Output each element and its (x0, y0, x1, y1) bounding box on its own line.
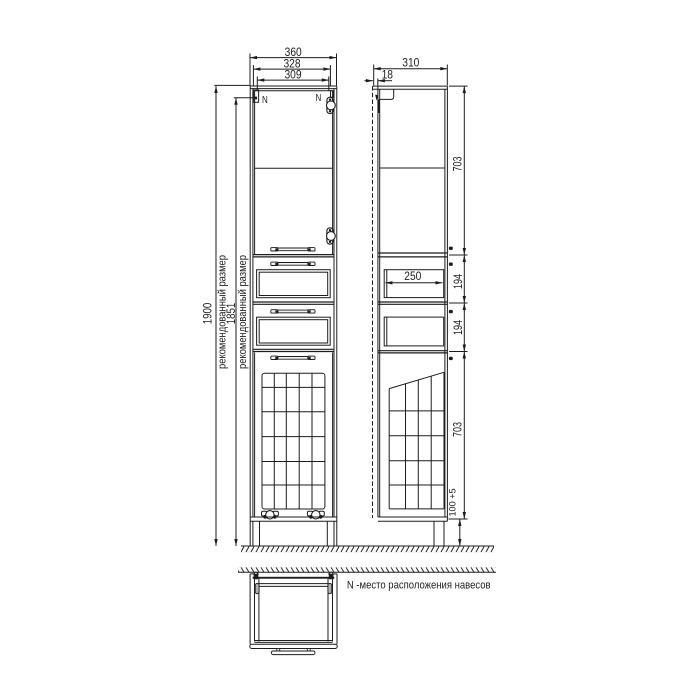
svg-text:309: 309 (284, 69, 301, 82)
svg-text:100 +5: 100 +5 (447, 488, 457, 516)
svg-text:703: 703 (451, 156, 465, 171)
svg-text:18: 18 (382, 69, 393, 82)
svg-text:N: N (316, 92, 322, 103)
svg-text:310: 310 (402, 57, 419, 70)
svg-text:703: 703 (451, 422, 465, 437)
svg-text:N: N (262, 94, 268, 105)
svg-text:1900: 1900 (202, 303, 215, 325)
svg-text:1851: 1851 (225, 303, 238, 325)
svg-text:рекомендованный размер: рекомендованный размер (237, 255, 249, 369)
svg-text:194: 194 (452, 320, 466, 335)
svg-text:194: 194 (452, 274, 466, 289)
svg-text:N -место расположения навесов: N -место расположения навесов (347, 580, 491, 592)
svg-text:250: 250 (404, 270, 421, 283)
